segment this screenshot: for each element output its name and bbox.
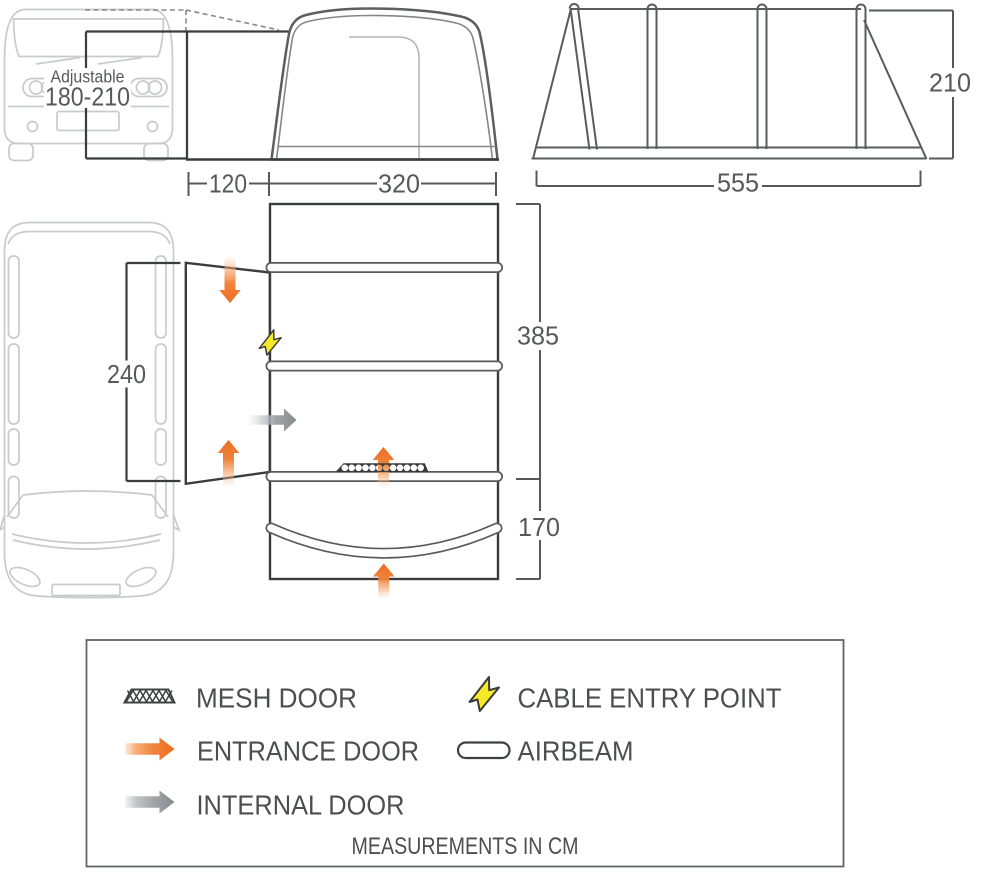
svg-text:120: 120: [209, 169, 247, 199]
svg-text:320: 320: [378, 169, 420, 199]
svg-text:CABLE ENTRY POINT: CABLE ENTRY POINT: [518, 683, 782, 714]
svg-text:INTERNAL DOOR: INTERNAL DOOR: [197, 790, 405, 821]
svg-text:AIRBEAM: AIRBEAM: [518, 736, 634, 767]
svg-text:210: 210: [929, 68, 971, 98]
svg-text:170: 170: [518, 512, 560, 542]
svg-text:385: 385: [517, 321, 559, 351]
svg-text:MEASUREMENTS IN CM: MEASUREMENTS IN CM: [352, 833, 579, 860]
svg-text:555: 555: [717, 168, 759, 198]
svg-text:240: 240: [107, 359, 146, 389]
svg-text:ENTRANCE DOOR: ENTRANCE DOOR: [197, 736, 419, 767]
svg-text:180-210: 180-210: [45, 82, 130, 112]
svg-text:MESH DOOR: MESH DOOR: [196, 683, 357, 714]
